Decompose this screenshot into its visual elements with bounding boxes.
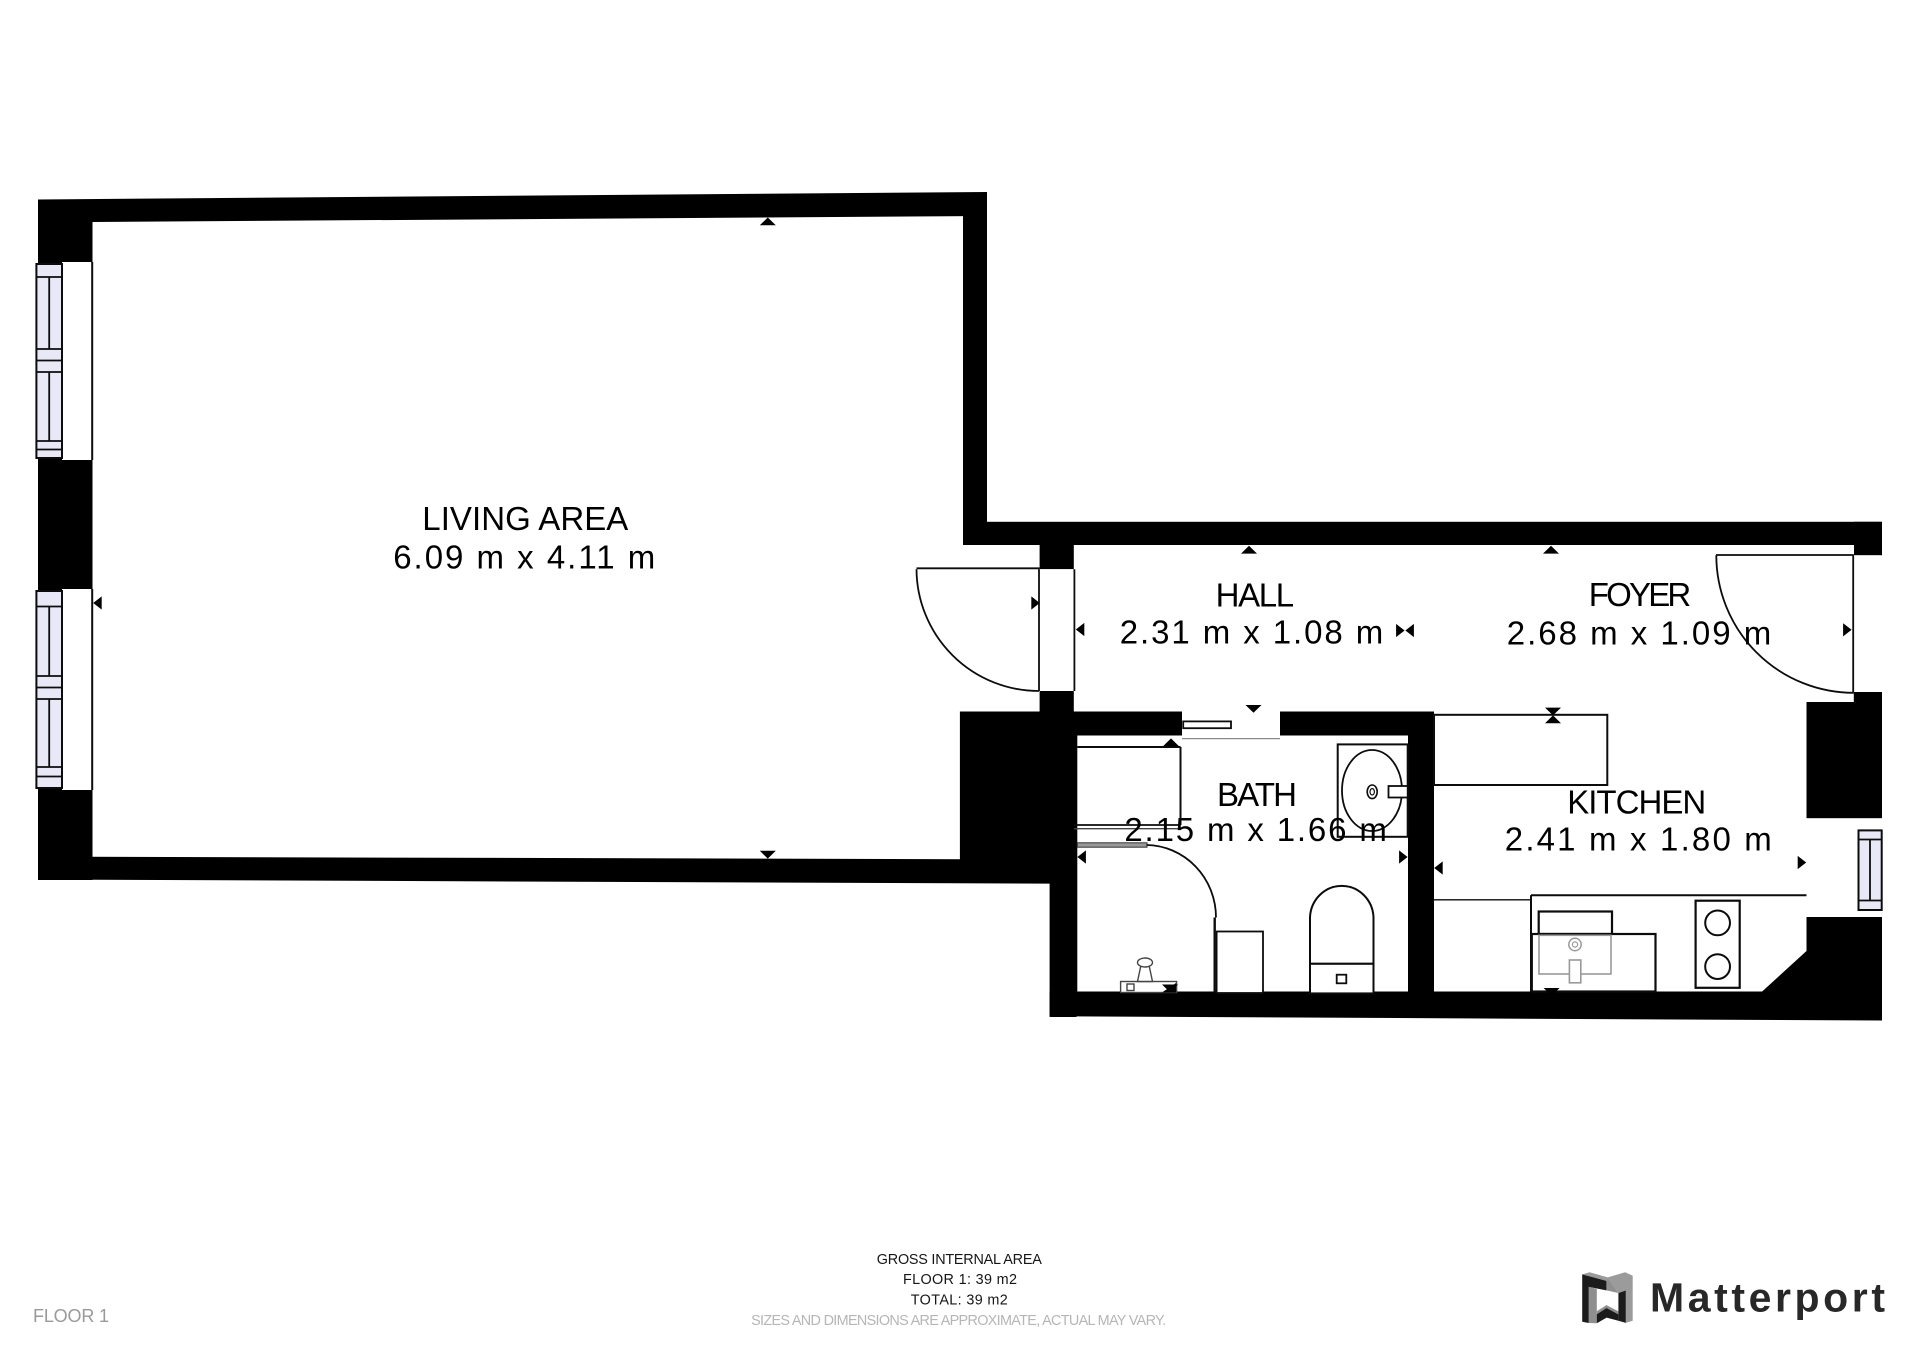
svg-text:FLOOR 1: FLOOR 1	[33, 1306, 109, 1326]
svg-text:KITCHEN: KITCHEN	[1567, 784, 1706, 821]
svg-text:BATH: BATH	[1217, 776, 1297, 813]
svg-text:FOYER: FOYER	[1589, 576, 1692, 613]
svg-text:FLOOR 1: 39 m2: FLOOR 1: 39 m2	[903, 1272, 1017, 1288]
svg-text:6.09 m x 4.11 m: 6.09 m x 4.11 m	[393, 539, 655, 576]
svg-text:TOTAL: 39 m2: TOTAL: 39 m2	[911, 1293, 1008, 1309]
svg-text:GROSS INTERNAL AREA: GROSS INTERNAL AREA	[877, 1252, 1042, 1268]
svg-text:LIVING AREA: LIVING AREA	[422, 500, 628, 537]
svg-text:2.31 m x 1.08 m: 2.31 m x 1.08 m	[1120, 614, 1384, 651]
svg-text:SIZES AND DIMENSIONS ARE APPRO: SIZES AND DIMENSIONS ARE APPROXIMATE, AC…	[751, 1313, 1166, 1329]
svg-text:2.15 m x 1.66 m: 2.15 m x 1.66 m	[1124, 811, 1387, 848]
svg-text:HALL: HALL	[1216, 576, 1295, 613]
